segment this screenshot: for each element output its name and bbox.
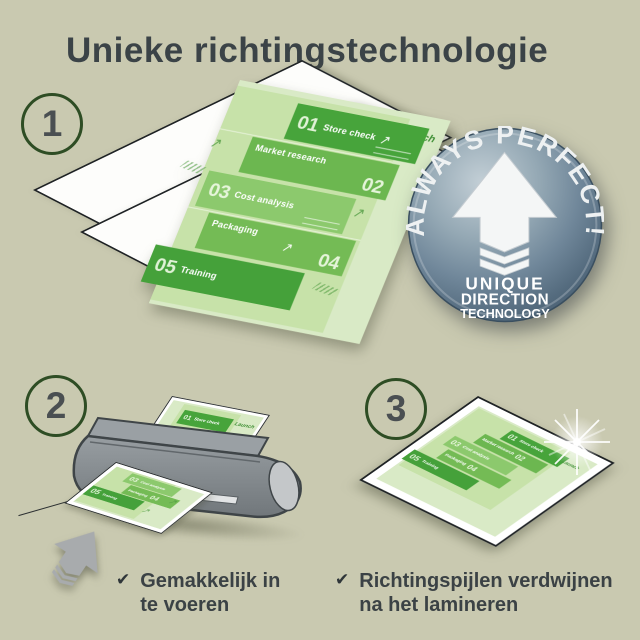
- badge-line-3: TECHNOLOGY: [460, 307, 550, 321]
- step-3-label: 3: [386, 388, 407, 430]
- always-perfect-badge: ALWAYS PERFECT! UNIQUE DIRECTION TECHNOL…: [406, 126, 604, 324]
- caption-easy-feed: ✔ Gemakkelijk in te voeren: [116, 569, 280, 617]
- badge-line-1: UNIQUE: [465, 273, 544, 293]
- check-icon: ✔: [335, 569, 349, 617]
- caption-arrows-disappear: ✔ Richtingspijlen verdwijnen na het lami…: [335, 569, 613, 617]
- step-1-label: 1: [42, 103, 63, 145]
- doodle-arrow-icon: ↗: [379, 133, 394, 146]
- step-1-number: 1: [21, 93, 83, 155]
- caption-arrows-line2: na het lamineren: [359, 594, 518, 616]
- shine-icon: [540, 405, 614, 479]
- caption-arrows-line1: Richtingspijlen verdwijnen: [359, 570, 612, 592]
- caption-easy-feed-line2: te voeren: [140, 594, 229, 616]
- step-3-number: 3: [365, 378, 427, 440]
- caption-easy-feed-line1: Gemakkelijk in: [140, 570, 280, 592]
- doodle-arrow-icon: ↗: [281, 240, 296, 253]
- page-title: Unieke richtingstechnologie: [66, 31, 626, 71]
- check-icon: ✔: [116, 569, 130, 617]
